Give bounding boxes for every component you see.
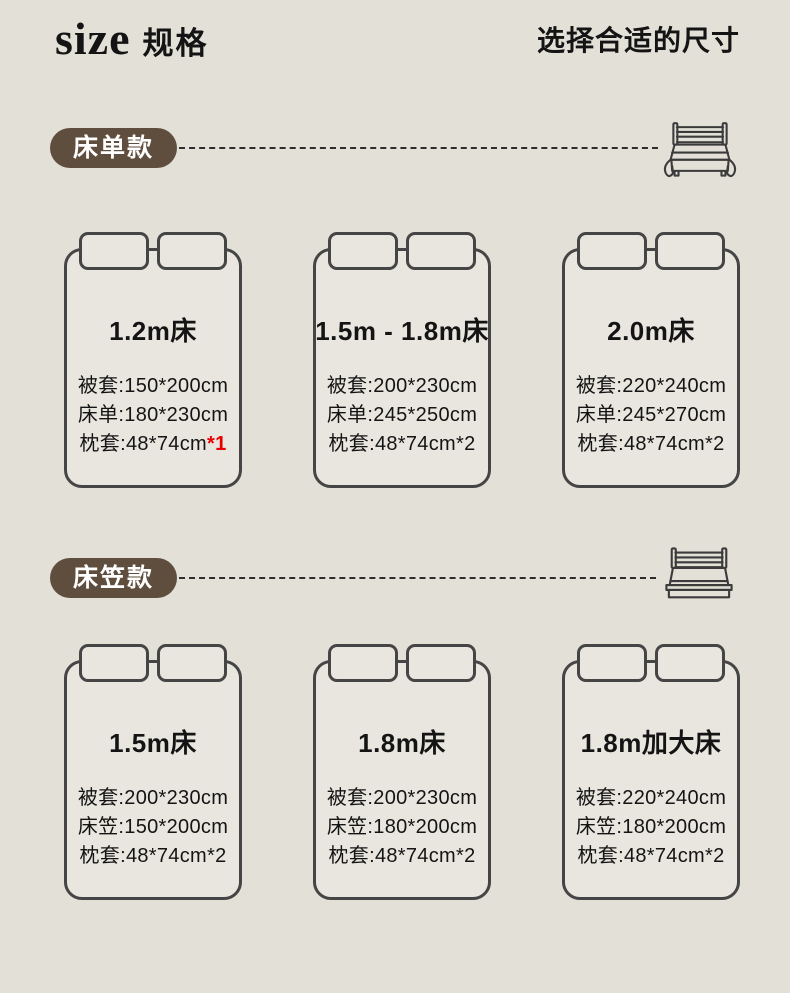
spec-line: 被套:150*200cm bbox=[78, 372, 228, 401]
spec-line: 床笠:180*200cm bbox=[576, 813, 726, 842]
spec-list: 被套:200*230cm 床笠:150*200cm 枕套:48*74cm*2 bbox=[78, 784, 228, 871]
bed-size-title: 2.0m床 bbox=[607, 311, 695, 348]
spec-text: 被套:200*230cm bbox=[327, 787, 477, 809]
bed-size-title: 1.8m床 bbox=[358, 723, 446, 760]
spec-line: 被套:220*240cm bbox=[576, 372, 726, 401]
section-label-pill: 床笠款 bbox=[50, 558, 177, 598]
dashed-line bbox=[179, 577, 656, 579]
spec-text: 枕套:48*74cm*2 bbox=[329, 433, 476, 455]
pillow-icon bbox=[328, 232, 398, 270]
page-title-en: size bbox=[55, 14, 131, 64]
pillows bbox=[565, 232, 737, 270]
size-card-1-8m-fitted: 1.8m床 被套:200*230cm 床笠:180*200cm 枕套:48*74… bbox=[313, 660, 491, 900]
size-card-2-0m: 2.0m床 被套:220*240cm 床单:245*270cm 枕套:48*74… bbox=[562, 248, 740, 488]
pillows bbox=[565, 644, 737, 682]
card-row-fitted: 1.5m床 被套:200*230cm 床笠:150*200cm 枕套:48*74… bbox=[0, 660, 790, 900]
section-header-sheet: 床单款 bbox=[0, 128, 790, 168]
spec-line: 枕套:48*74cm*2 bbox=[327, 430, 477, 459]
pillow-icon bbox=[79, 232, 149, 270]
page-subtitle: 选择合适的尺寸 bbox=[537, 19, 740, 59]
pillow-icon bbox=[577, 232, 647, 270]
spec-list: 被套:220*240cm 床笠:180*200cm 枕套:48*74cm*2 bbox=[576, 784, 726, 871]
spec-text: 床笠:180*200cm bbox=[327, 816, 477, 838]
pillows bbox=[67, 644, 239, 682]
spec-list: 被套:150*200cm 床单:180*230cm 枕套:48*74cm*1 bbox=[78, 372, 228, 459]
size-card-1-8m-plus-fitted: 1.8m加大床 被套:220*240cm 床笠:180*200cm 枕套:48*… bbox=[562, 660, 740, 900]
spec-text: 床笠:180*200cm bbox=[576, 816, 726, 838]
spec-text: 被套:200*230cm bbox=[327, 375, 477, 397]
page-title-zh: 规格 bbox=[143, 18, 209, 63]
section-label: 床笠款 bbox=[73, 564, 154, 592]
spec-text: 枕套:48*74cm*2 bbox=[329, 845, 476, 867]
size-card-1-5-1-8m: 1.5m - 1.8m床 被套:200*230cm 床单:245*250cm 枕… bbox=[313, 248, 491, 488]
spec-line: 被套:220*240cm bbox=[576, 784, 726, 813]
spec-list: 被套:200*230cm 床单:245*250cm 枕套:48*74cm*2 bbox=[327, 372, 477, 459]
pillow-icon bbox=[406, 232, 476, 270]
page-header: size 规格 选择合适的尺寸 bbox=[0, 0, 790, 64]
spec-line: 床单:180*230cm bbox=[78, 401, 228, 430]
spec-text: 被套:200*230cm bbox=[78, 787, 228, 809]
page-title: size 规格 bbox=[55, 14, 209, 64]
spec-line: 枕套:48*74cm*2 bbox=[327, 842, 477, 871]
pillow-icon bbox=[406, 644, 476, 682]
size-card-1-2m: 1.2m床 被套:150*200cm 床单:180*230cm 枕套:48*74… bbox=[64, 248, 242, 488]
pillows bbox=[67, 232, 239, 270]
spec-line: 床笠:150*200cm bbox=[78, 813, 228, 842]
bed-size-title: 1.8m加大床 bbox=[581, 723, 722, 760]
bed-size-title: 1.5m - 1.8m床 bbox=[315, 311, 489, 348]
pillows bbox=[316, 644, 488, 682]
spec-text: 床单:245*250cm bbox=[327, 404, 477, 426]
spec-text: 枕套:48*74cm*2 bbox=[578, 845, 725, 867]
draped-sheet-bed-icon bbox=[660, 120, 740, 182]
bed-size-title: 1.5m床 bbox=[109, 723, 197, 760]
spec-text: 被套:220*240cm bbox=[576, 375, 726, 397]
spec-text: 枕套:48*74cm*2 bbox=[578, 433, 725, 455]
dashed-line bbox=[179, 147, 658, 149]
spec-line: 枕套:48*74cm*1 bbox=[78, 430, 228, 459]
spec-text: 被套:150*200cm bbox=[78, 375, 228, 397]
spec-line: 被套:200*230cm bbox=[327, 372, 477, 401]
spec-line: 床单:245*270cm bbox=[576, 401, 726, 430]
pillow-icon bbox=[79, 644, 149, 682]
spec-count-red: *1 bbox=[207, 433, 227, 455]
pillow-icon bbox=[328, 644, 398, 682]
spec-line: 床笠:180*200cm bbox=[327, 813, 477, 842]
spec-text: 床单:180*230cm bbox=[78, 404, 228, 426]
spec-line: 床单:245*250cm bbox=[327, 401, 477, 430]
bed-size-title: 1.2m床 bbox=[109, 311, 197, 348]
spec-line: 被套:200*230cm bbox=[327, 784, 477, 813]
pillow-icon bbox=[157, 232, 227, 270]
spec-line: 枕套:48*74cm*2 bbox=[78, 842, 228, 871]
fitted-sheet-bed-icon bbox=[658, 546, 740, 603]
size-card-1-5m-fitted: 1.5m床 被套:200*230cm 床笠:150*200cm 枕套:48*74… bbox=[64, 660, 242, 900]
spec-text: 被套:220*240cm bbox=[576, 787, 726, 809]
card-row-sheet: 1.2m床 被套:150*200cm 床单:180*230cm 枕套:48*74… bbox=[0, 248, 790, 488]
spec-text: 枕套:48*74cm*2 bbox=[80, 845, 227, 867]
section-label-pill: 床单款 bbox=[50, 128, 177, 168]
spec-list: 被套:200*230cm 床笠:180*200cm 枕套:48*74cm*2 bbox=[327, 784, 477, 871]
spec-line: 枕套:48*74cm*2 bbox=[576, 842, 726, 871]
spec-text: 床单:245*270cm bbox=[576, 404, 726, 426]
spec-text: 枕套:48*74cm bbox=[79, 433, 207, 455]
spec-line: 被套:200*230cm bbox=[78, 784, 228, 813]
pillows bbox=[316, 232, 488, 270]
pillow-icon bbox=[655, 644, 725, 682]
spec-line: 枕套:48*74cm*2 bbox=[576, 430, 726, 459]
spec-text: 床笠:150*200cm bbox=[78, 816, 228, 838]
spec-list: 被套:220*240cm 床单:245*270cm 枕套:48*74cm*2 bbox=[576, 372, 726, 459]
pillow-icon bbox=[577, 644, 647, 682]
pillow-icon bbox=[157, 644, 227, 682]
section-label: 床单款 bbox=[73, 134, 154, 162]
section-header-fitted: 床笠款 bbox=[0, 558, 790, 598]
pillow-icon bbox=[655, 232, 725, 270]
